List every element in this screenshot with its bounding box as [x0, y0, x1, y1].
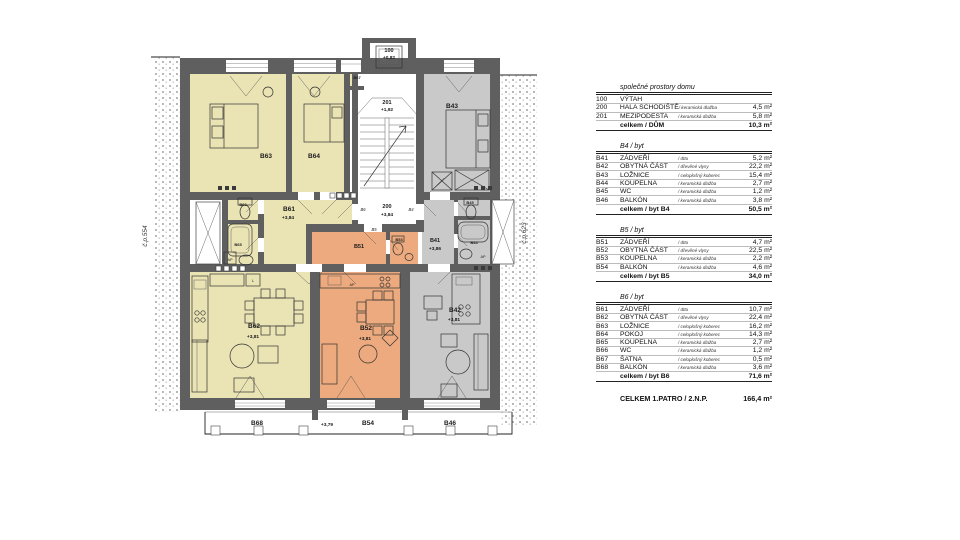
room-name: ZÁDVEŘÍ [620, 239, 678, 246]
room-name: ZÁDVEŘÍ [620, 306, 678, 313]
legend-row: B52OBYTNÁ ČÁST/ dřevěné vlysy22,5 m² [596, 247, 772, 255]
room-code: B41 [596, 155, 620, 162]
room-name: KOUPELNA [620, 339, 678, 346]
room-area: 1,2 m² [736, 188, 772, 195]
legend-row: B41ZÁDVEŘÍ/ dtto5,2 m² [596, 155, 772, 163]
room-area: 2,7 m² [736, 339, 772, 346]
legend-total: celkem / byt B450,5 m² [596, 205, 772, 215]
room-name: HALA SCHODIŠTĚ [620, 104, 679, 111]
light-shaft-left [196, 202, 220, 264]
legend: společné prostory domu 100VÝTAH 200HALA … [596, 84, 772, 403]
legend-table-title: B6 / byt [596, 294, 772, 305]
room-area: 22,2 m² [736, 163, 772, 170]
room-code: B46 [596, 197, 620, 204]
room-name: ZÁDVEŘÍ [620, 155, 678, 162]
room-label-landing: 201 [382, 100, 391, 106]
floor-type: / dtto [678, 156, 736, 161]
balcony-label-b68: B68 [251, 420, 263, 427]
room-name: VÝTAH [620, 96, 678, 103]
room-area: 0,5 m² [736, 356, 772, 363]
floor-type: / keramická dlažba [678, 189, 736, 194]
room-code: B45 [596, 188, 620, 195]
room-label-b65: B65 [234, 242, 242, 247]
room-area: 4,5 m² [736, 104, 772, 111]
total-area: 34,0 m² [736, 273, 772, 280]
elev-b62: +3,81 [247, 334, 259, 340]
legend-table-common: společné prostory domu 100VÝTAH 200HALA … [596, 84, 772, 131]
floor-type: / keramická dlažba [678, 181, 736, 186]
grand-total-area: 166,4 m² [743, 394, 772, 403]
room-code: 201 [596, 113, 620, 120]
light-shaft-right [492, 200, 514, 264]
legend-total: celkem / byt B671,6 m² [596, 372, 772, 382]
room-code: B68 [596, 364, 620, 371]
room-label-b53: B53 [395, 237, 403, 242]
legend-row: B63LOŽNICE/ celoplošný koberec16,2 m² [596, 322, 772, 330]
room-label-b52: B52 [360, 325, 372, 332]
grand-total-label: CELKEM 1.PATRO / 2.N.P. [620, 394, 707, 403]
floor-type: / keramická dlažba [678, 365, 736, 370]
room-label-b42: B42 [449, 307, 461, 314]
room-area: 4,7 m² [736, 239, 772, 246]
room-name: LOŽNICE [620, 323, 678, 330]
room-label-b51: B51 [354, 244, 364, 250]
room-label-hall: 200 [382, 204, 391, 210]
room-name: LOŽNICE [620, 172, 678, 179]
room-name: ŠATNA [620, 356, 678, 363]
room-name: BALKÓN [620, 197, 678, 204]
room-label-b66: B66 [239, 202, 247, 207]
legend-total: celkem / byt B534,0 m² [596, 272, 772, 282]
legend-table-b6: B6 / byt B61ZÁDVEŘÍ/ dtto10,7 m² B62OBYT… [596, 294, 772, 382]
room-label-elevator: 100 [384, 48, 393, 54]
room-area: 22,4 m² [736, 314, 772, 321]
floor-plan: 100 +0,82 201 +1,92 200 +3,84 B43 B63 B6… [140, 0, 560, 460]
legend-row: B64POKOJ/ celoplošný koberec14,3 m² [596, 331, 772, 339]
room-area: 5,8 m² [736, 113, 772, 120]
floor-type: / celoplošný koberec [678, 357, 736, 362]
room-name: WC [620, 347, 678, 354]
grand-total: CELKEM 1.PATRO / 2.N.P. 166,4 m² [596, 394, 772, 403]
legend-table-b5: B5 / byt B51ZÁDVEŘÍ/ dtto4,7 m² B52OBYTN… [596, 227, 772, 282]
total-area: 71,6 m² [736, 373, 772, 380]
floor-type: / celoplošný koberec [678, 332, 736, 337]
legend-row: B53KOUPELNA/ keramická dlažba2,2 m² [596, 255, 772, 263]
room-code: B62 [596, 314, 620, 321]
room-area: 15,4 m² [736, 172, 772, 179]
floor-type: / dřevěné vlysy [678, 315, 736, 320]
legend-row: B45WC/ keramická dlažba1,2 m² [596, 188, 772, 196]
room-label-b44: B44 [470, 240, 478, 245]
room-code: B42 [596, 163, 620, 170]
room-area: 3,6 m² [736, 364, 772, 371]
legend-row: B51ZÁDVEŘÍ/ dtto4,7 m² [596, 239, 772, 247]
floor-type: / dtto [678, 240, 736, 245]
room-area: 2,7 m² [736, 180, 772, 187]
floor-type: / keramická dlažba [678, 348, 736, 353]
page: { "plan": { "neighbor_left": "č.p.554", … [0, 0, 960, 540]
washer-tag-b65: AP [227, 258, 233, 262]
legend-row: B67ŠATNA/ celoplošný koberec0,5 m² [596, 356, 772, 364]
total-area: 10,3 m² [736, 122, 772, 129]
room-label-b45: B45 [466, 200, 474, 205]
legend-row: B44KOUPELNA/ keramická dlažba2,7 m² [596, 180, 772, 188]
room-area: 5,2 m² [736, 155, 772, 162]
room-code: B44 [596, 180, 620, 187]
room-area: 3,8 m² [736, 197, 772, 204]
elev-b52: +3,81 [359, 336, 371, 342]
room-area: 4,6 m² [736, 264, 772, 271]
room-label-b62: B62 [248, 323, 260, 330]
floor-type: / keramická dlažba [678, 114, 736, 119]
room-label-b43: B43 [446, 103, 458, 110]
neighbor-hatch-left [151, 57, 180, 412]
neighbor-label-left: č.p.554 [142, 225, 149, 247]
total-area: 50,5 m² [736, 206, 772, 213]
balcony-elev: +3,79 [321, 422, 333, 428]
washer-tag-b44: AP [480, 255, 486, 259]
washer-tag-b52: AP [349, 283, 355, 287]
legend-table-title: společné prostory domu [596, 84, 772, 95]
legend-row: B68BALKÓN/ keramická dlažba3,6 m² [596, 364, 772, 372]
total-label: celkem / byt B4 [620, 206, 736, 213]
room-area: 22,5 m² [736, 247, 772, 254]
elev-hall: +3,84 [381, 212, 393, 218]
floor-type: / keramická dlažba [678, 265, 736, 270]
room-area: 2,2 m² [736, 255, 772, 262]
room-area: 14,3 m² [736, 331, 772, 338]
room-code: B53 [596, 255, 620, 262]
room-code: B52 [596, 247, 620, 254]
floor-type: / dřevěné vlysy [678, 164, 736, 169]
room-label-b61: B61 [283, 206, 295, 213]
room-name: WC [620, 188, 678, 195]
room-name: BALKÓN [620, 264, 678, 271]
elev-landing: +1,92 [381, 107, 393, 113]
room-code: B54 [596, 264, 620, 271]
total-label: celkem / DŮM [620, 122, 736, 129]
elev-b61: +3,84 [282, 215, 294, 221]
room-code: B61 [596, 306, 620, 313]
room-area: 1,2 m² [736, 347, 772, 354]
room-label-b64: B64 [308, 153, 320, 160]
room-area: 16,2 m² [736, 323, 772, 330]
room-name: POKOJ [620, 331, 678, 338]
legend-row: 200HALA SCHODIŠTĚ/ keramická dlažba4,5 m… [596, 104, 772, 112]
room-code: 200 [596, 104, 620, 111]
legend-row: B42OBYTNÁ ČÁST/ dřevěné vlysy22,2 m² [596, 163, 772, 171]
floor-type: / keramická dlažba [678, 256, 736, 261]
room-name: BALKÓN [620, 364, 678, 371]
floor-type: / celoplošný koberec [678, 324, 736, 329]
balcony-label-b54: B54 [362, 420, 374, 427]
legend-table-b4: B4 / byt B41ZÁDVEŘÍ/ dtto5,2 m² B42OBYTN… [596, 143, 772, 215]
door-tag-b5: B5 [371, 227, 377, 232]
room-code: B63 [596, 323, 620, 330]
room-area: 10,7 m² [736, 306, 772, 313]
floor-type: / celoplošný koberec [678, 173, 736, 178]
room-name: OBYTNÁ ČÁST [620, 314, 678, 321]
legend-row: B46BALKÓN/ keramická dlažba3,8 m² [596, 196, 772, 204]
legend-row: B62OBYTNÁ ČÁST/ dřevěné vlysy22,4 m² [596, 314, 772, 322]
elev-elevator: +0,82 [383, 55, 395, 61]
floor-type: / dřevěné vlysy [678, 248, 736, 253]
room-code: B67 [596, 356, 620, 363]
elev-b41: +3,86 [429, 246, 441, 252]
room-code: 100 [596, 96, 620, 103]
room-label-b41: B41 [430, 238, 440, 244]
room-name: OBYTNÁ ČÁST [620, 247, 678, 254]
neighbor-label-right: č.p.623 [521, 222, 528, 244]
door-tag-b4: B4 [408, 207, 414, 212]
balcony-label-b46: B46 [444, 420, 456, 427]
room-code: B51 [596, 239, 620, 246]
legend-table-title: B4 / byt [596, 143, 772, 154]
room-code: B43 [596, 172, 620, 179]
legend-row: B65KOUPELNA/ keramická dlažba2,7 m² [596, 339, 772, 347]
legend-row: B54BALKÓN/ keramická dlažba4,6 m² [596, 264, 772, 272]
total-label: celkem / byt B5 [620, 273, 736, 280]
room-name: MEZIPODESTA [620, 113, 678, 120]
room-code: B64 [596, 331, 620, 338]
legend-table-title: B5 / byt [596, 227, 772, 238]
room-name: KOUPELNA [620, 255, 678, 262]
legend-total: celkem / DŮM10,3 m² [596, 121, 772, 131]
total-label: celkem / byt B6 [620, 373, 736, 380]
floor-type: / keramická dlažba [678, 198, 736, 203]
legend-row: B66WC/ keramická dlažba1,2 m² [596, 347, 772, 355]
room-label-b67: B67 [353, 75, 361, 80]
elev-b42: +3,81 [448, 317, 460, 323]
room-code: B65 [596, 339, 620, 346]
floor-type: / keramická dlažba [678, 340, 736, 345]
fridge-tag-b62: L [252, 279, 254, 283]
legend-row: B43LOŽNICE/ celoplošný koberec15,4 m² [596, 171, 772, 179]
floor-type: / dtto [678, 307, 736, 312]
door-tag-b6: B6 [360, 207, 366, 212]
room-name: KOUPELNA [620, 180, 678, 187]
room-code: B66 [596, 347, 620, 354]
room-label-b63: B63 [260, 153, 272, 160]
legend-row: 201MEZIPODESTA/ keramická dlažba5,8 m² [596, 113, 772, 121]
legend-row: B61ZÁDVEŘÍ/ dtto10,7 m² [596, 306, 772, 314]
room-name: OBYTNÁ ČÁST [620, 163, 678, 170]
floor-type: / keramická dlažba [679, 105, 737, 110]
